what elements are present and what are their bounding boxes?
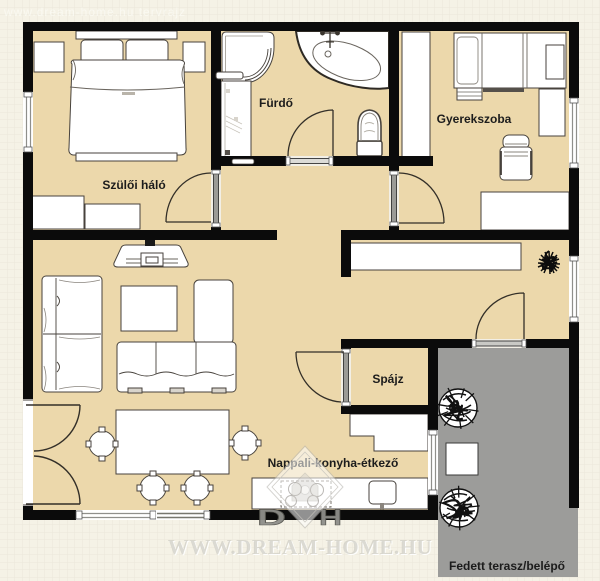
svg-text:Szülői háló: Szülői háló: [102, 178, 165, 192]
svg-text:Gyerekszoba: Gyerekszoba: [437, 112, 512, 126]
svg-text:Fedett terasz/belépő: Fedett terasz/belépő: [449, 559, 565, 573]
svg-text:WWW.DREAM-HOME.HU: WWW.DREAM-HOME.HU: [168, 535, 432, 559]
svg-text:Spájz: Spájz: [372, 372, 403, 386]
svg-text:Fürdő: Fürdő: [259, 96, 293, 110]
svg-text:D: D: [257, 505, 286, 530]
svg-text:www.dream-home.hu tervrajz: www.dream-home.hu tervrajz: [3, 5, 186, 19]
